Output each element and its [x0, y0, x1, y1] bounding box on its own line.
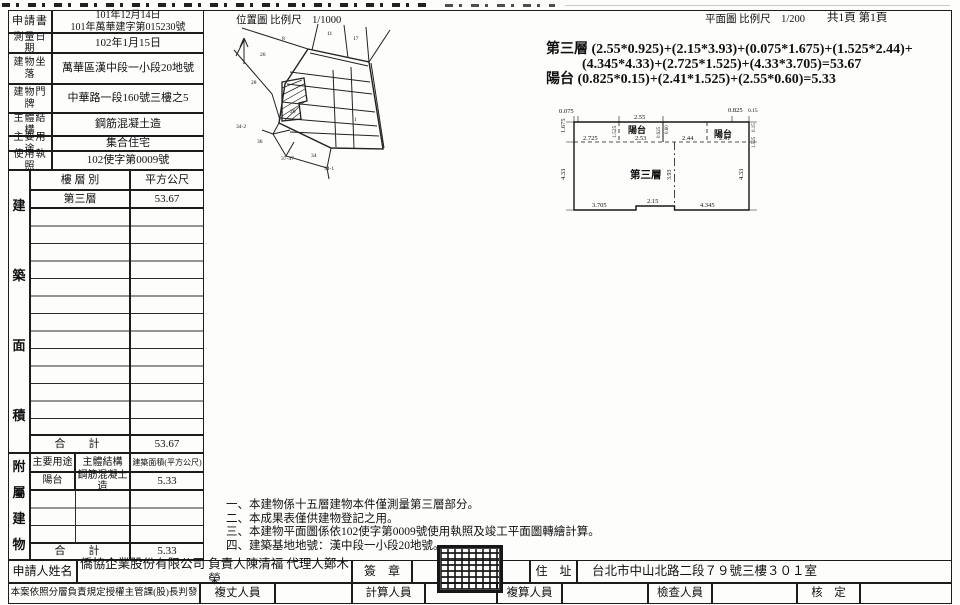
dim-label: 1.675: [560, 118, 567, 133]
annex-empty-rows-right: [130, 490, 204, 543]
annex-section-side-label: 附 屬 建 物: [8, 453, 30, 560]
parcel-label: 36: [257, 139, 263, 145]
staff-blank-inspection: [712, 583, 797, 604]
dim-label: 3.705: [592, 202, 607, 209]
info-value-structure: 鋼筋混凝土造: [52, 113, 204, 136]
calc-line-1: 第三層 (2.55*0.925)+(2.15*3.93)+(0.075*1.67…: [546, 42, 956, 57]
annex-col-divider: [75, 490, 76, 543]
parcel-label: 34: [311, 153, 317, 159]
info-label-license: 使用執照: [8, 151, 52, 170]
applicant-name-value: 僑協企業股份有限公司 負責人陳清福 代理人鄭木榮: [77, 560, 352, 583]
side-char: 築: [12, 269, 25, 284]
company-seal-stamp: [437, 545, 503, 593]
staff-label-calculation: 計算人員: [352, 583, 425, 604]
info-value-survey-date: 102年1月15日: [52, 33, 204, 53]
area-section-side-label: 建 築 面 積: [8, 170, 30, 453]
staff-blank-resurvey: [275, 583, 352, 604]
calc-line-2: (4.345*4.33)+(2.725*1.525)+(4.33*3.705)=…: [546, 57, 956, 72]
address-value: 台北市中山北路二段７９號三樓３０１室: [577, 560, 952, 583]
annex-row-use: 陽台: [30, 472, 75, 490]
dim-label: 1.525: [752, 136, 757, 148]
parcel-label: 28: [251, 80, 257, 86]
side-char: 附: [12, 460, 25, 475]
applicant-name-label: 申請人姓名: [8, 560, 77, 583]
area-total-label: 合 計: [30, 435, 130, 453]
parcel-label: 26: [260, 52, 266, 58]
annex-row-area: 5.33: [130, 472, 204, 490]
staff-blank-approval: [860, 583, 952, 604]
dim-label: 4.33: [738, 169, 745, 180]
side-char: 建: [12, 199, 25, 214]
dim-label: 2.53: [635, 135, 646, 142]
annex-row-structure: 鋼筋混凝土造: [75, 472, 130, 490]
note-item-3: 三、本建物平面圖係依102使字第0009號使用執照及竣工平面圖轉繪計算。: [226, 526, 656, 540]
info-label-survey-date: 測量日期: [8, 33, 52, 53]
area-empty-rows-floor: [30, 208, 130, 435]
parcel-label: 34-2: [236, 124, 246, 130]
dim-label: 1.525: [612, 125, 618, 138]
staff-label-approval: 核 定: [797, 583, 860, 604]
info-value-application: 101年12月14日 101年萬華建字第015230號: [52, 10, 204, 33]
dim-label: 0.075: [559, 108, 574, 115]
note-item-1: 一、本建物係十五層建物本件僅測量第三層部分。: [226, 499, 656, 513]
dim-label: 0.15: [748, 108, 758, 114]
road-lines: [234, 28, 308, 120]
staff-blank-recheck: [562, 583, 648, 604]
north-arrow-icon: [236, 38, 248, 64]
parcel-label: 8: [282, 36, 285, 42]
clipped-page-title-cont: [445, 4, 555, 7]
address-label: 住 址: [530, 560, 577, 583]
parcel-label: 37-47: [281, 156, 294, 162]
side-char: 建: [12, 512, 25, 527]
dim-label: 0.15: [752, 123, 757, 132]
room-label: 第三層: [630, 168, 662, 181]
side-char: 屬: [12, 486, 25, 501]
info-label-site: 建物坐落: [8, 53, 52, 84]
staff-label-inspection: 檢查人員: [648, 583, 712, 604]
dim-label: 2.55: [634, 114, 645, 121]
dim-label: 0.825: [728, 107, 743, 114]
scan-artifact-line: [565, 5, 950, 6]
dim-label: 4.345: [700, 202, 715, 209]
parcel-label: 1: [354, 117, 357, 123]
floor-plan-title: 平面圖 比例尺 1/200: [705, 11, 805, 26]
clipped-page-title: [2, 3, 432, 7]
survey-document-page: 申請書 101年12月14日 101年萬華建字第015230號 測量日期 102…: [0, 0, 960, 605]
balcony-label: 陽台: [628, 124, 646, 135]
area-row-floor: 第三層: [30, 190, 130, 208]
dim-label: 4.33: [560, 169, 567, 180]
location-map-sketch: 8 11 17 26 28 1 20 34-2 36 37-47 34 34-1: [232, 22, 432, 180]
parcel-label: 17: [353, 36, 359, 42]
calc-line-3: 陽台 (0.825*0.15)+(2.41*1.525)+(2.55*0.60)…: [546, 72, 956, 87]
floor-plan-drawing: 0.075 2.55 0.825 0.15 1.675 4.33 1.525 0…: [552, 100, 814, 224]
seal-column-label: 簽 章: [352, 560, 412, 583]
area-row-sqm: 53.67: [130, 190, 204, 208]
authorization-text: 本案依照分層負責規定授權主管課(股)長判發: [8, 583, 200, 604]
parcel-label-subject: 20: [290, 109, 296, 115]
info-value-license: 102使字第0009號: [52, 151, 204, 170]
area-empty-rows-sqm: [130, 208, 204, 435]
note-item-2: 二、本成果表僅供建物登記之用。: [226, 513, 656, 527]
info-value-use: 集合住宅: [52, 136, 204, 151]
page-count: 共1頁 第1頁: [827, 9, 887, 25]
annex-empty-rows-left: [30, 490, 130, 543]
dim-label: 2.44: [682, 135, 694, 142]
info-value-site: 萬華區漢中段一小段20地號: [52, 53, 204, 84]
dim-label: 2.15: [647, 198, 658, 205]
dim-label: 3.93: [667, 170, 673, 181]
area-col-sqm-header: 平方公尺: [130, 170, 204, 190]
parcel-label: 34-1: [324, 166, 334, 172]
info-label-application: 申請書: [8, 10, 52, 33]
info-value-door-plate: 中華路一段160號三樓之5: [52, 84, 204, 113]
parcel-label: 11: [327, 31, 333, 37]
staff-label-resurvey: 複丈人員: [200, 583, 275, 604]
area-calculation: 第三層 (2.55*0.925)+(2.15*3.93)+(0.075*1.67…: [546, 42, 956, 87]
annex-col-area-header: 建築面積(平方公尺): [130, 453, 204, 472]
dim-label: 2.725: [583, 135, 598, 142]
staff-label-recheck: 複算人員: [497, 583, 562, 604]
balcony-label: 陽台: [714, 128, 732, 139]
annex-col-use-header: 主要用途: [30, 453, 75, 472]
area-col-floor-header: 樓 層 別: [30, 170, 130, 190]
side-char: 積: [12, 409, 25, 424]
info-label-door-plate: 建物門牌: [8, 84, 52, 113]
side-char: 物: [12, 538, 25, 553]
area-total-value: 53.67: [130, 435, 204, 453]
dim-label: 0.60: [665, 125, 670, 134]
dim-label: 0.925: [657, 126, 662, 138]
side-char: 面: [12, 339, 25, 354]
